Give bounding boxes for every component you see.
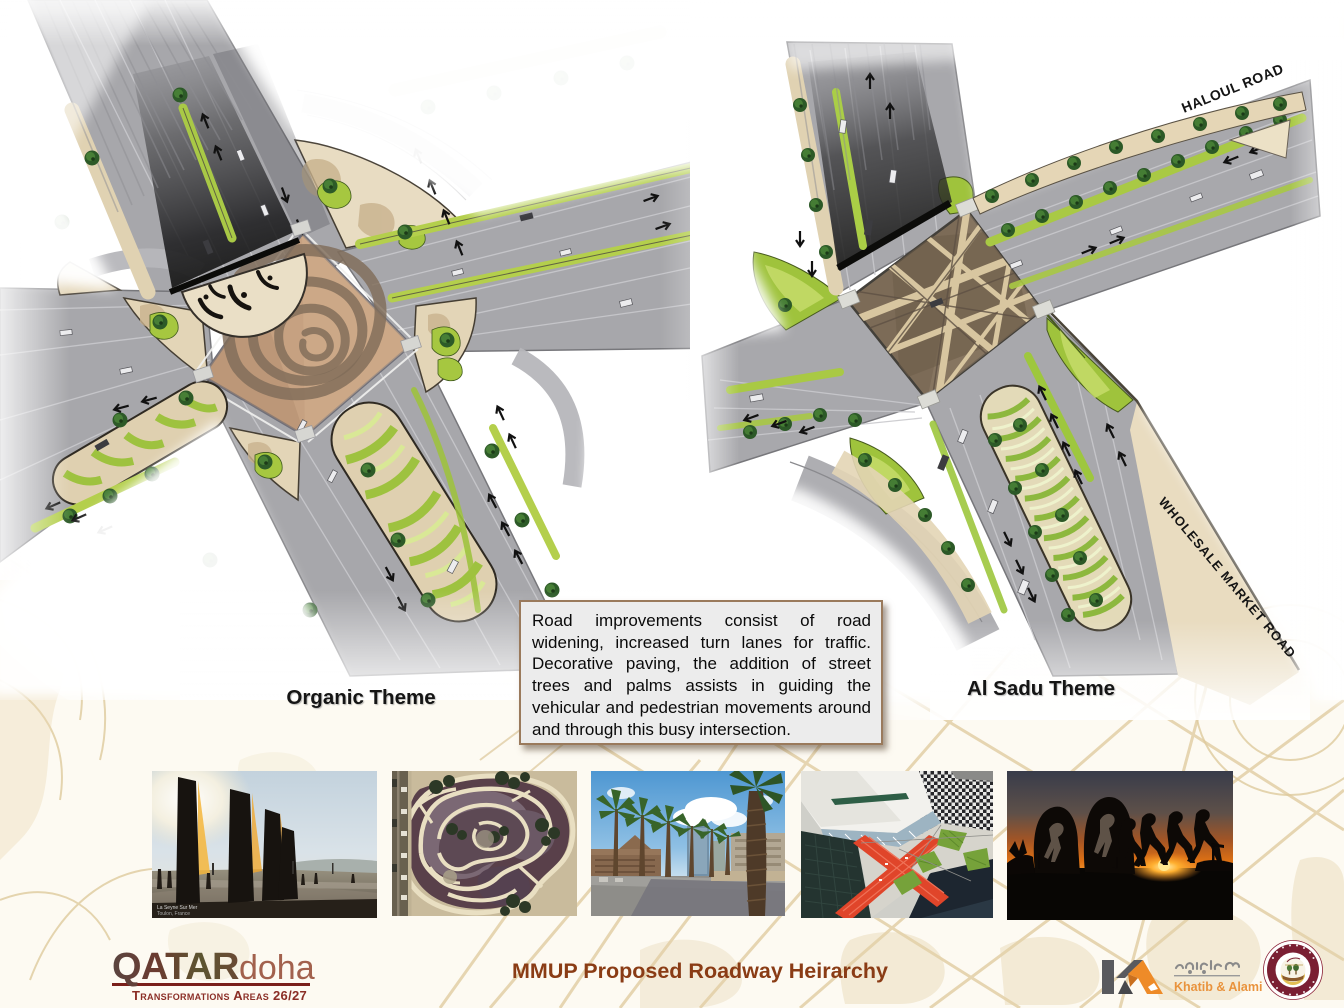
svg-text:Khatib & Alami: Khatib & Alami bbox=[1174, 980, 1262, 994]
svg-text:Toulon, France: Toulon, France bbox=[157, 911, 190, 917]
